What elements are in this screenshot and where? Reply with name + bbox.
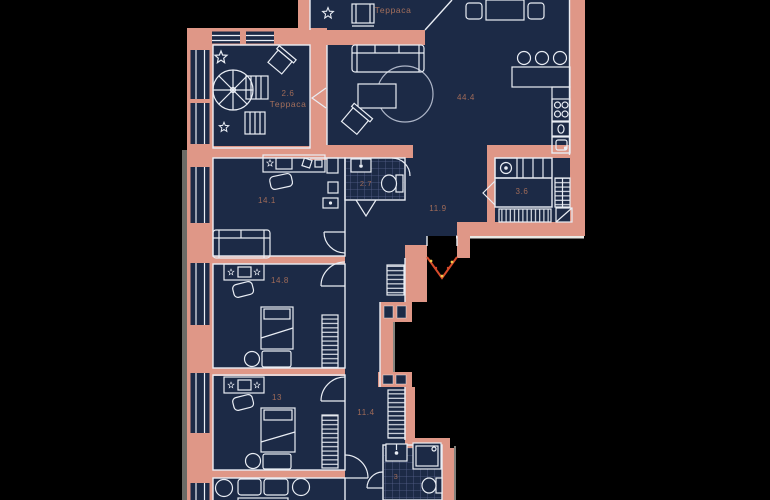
toilet-icon [422,478,442,493]
room-label-hall-top: 11.9 [429,204,446,213]
room-label-bedroom-low: 13 [272,393,282,402]
toilet-icon [382,175,404,192]
floor-plan-stage: Терраса 2.6 Терраса 44.4 14.1 2.7 11.9 3… [0,0,770,500]
room-label-storage: 3.6 [516,187,529,196]
room-label-hall-low: 11.4 [357,408,374,417]
room-label-bathroom-low: 3 [394,472,399,481]
floor-plan-svg: Терраса 2.6 Терраса 44.4 14.1 2.7 11.9 3… [0,0,770,500]
room-label-terrace-left: Терраса [270,99,307,109]
room-label-terrace-top: Терраса [375,5,412,15]
room-label-bedroom-mid: 14.8 [271,276,289,285]
room-label-bathroom-top: 2.7 [360,179,372,188]
room-label-office: 14.1 [258,196,276,205]
room-label-terrace-left-area: 2.6 [282,89,295,98]
room-label-living: 44.4 [457,93,475,102]
shower-icon [413,443,441,469]
sink-icon [386,444,407,461]
coffee-table [358,84,396,108]
